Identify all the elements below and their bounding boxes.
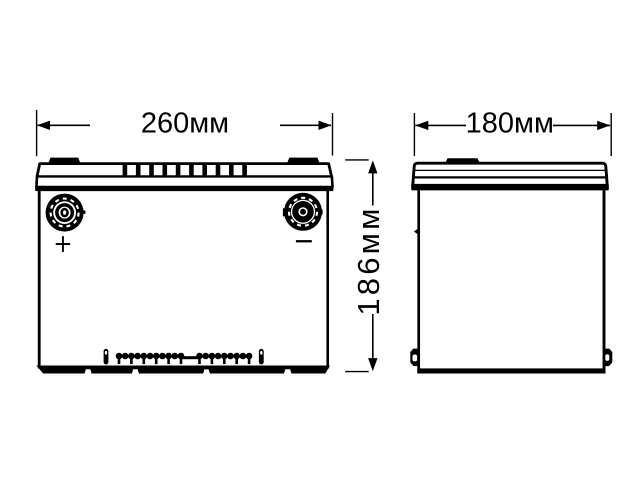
svg-text:180мм: 180мм xyxy=(466,108,554,140)
svg-text:260мм: 260мм xyxy=(141,108,229,140)
svg-text:186мм: 186мм xyxy=(351,205,386,315)
